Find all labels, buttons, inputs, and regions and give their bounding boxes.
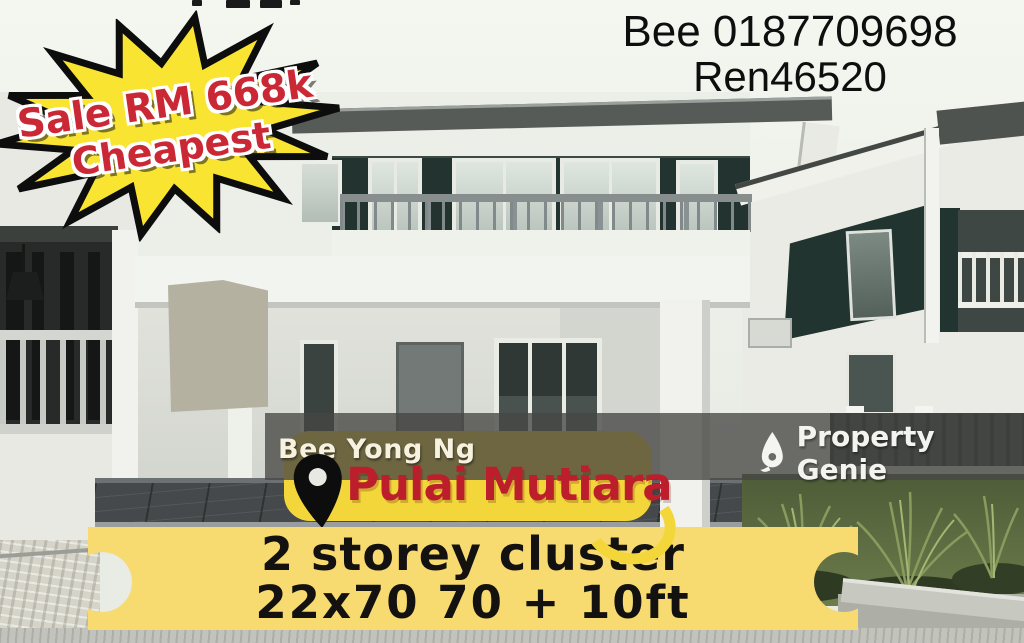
details-banner: 2 storey cluster 22x70 70 + 10ft [88,529,858,627]
balcony-railing-top [340,194,752,202]
property-size: 22x70 70 + 10ft [88,579,858,627]
right-house-accent-wall [940,208,960,332]
cropped-text-fragment [290,0,300,5]
cement-patch [168,280,268,412]
balcony-fascia [332,230,750,256]
pavement-strip [0,628,1024,643]
cropped-text-fragment [192,0,202,6]
balcony-railing-balusters [340,202,752,232]
right-house-balcony [958,210,1024,332]
rain-downpipe [924,128,939,343]
right-house-window [846,229,897,321]
genie-flame-icon [758,430,787,476]
left-railing-bottom [0,424,118,434]
left-railing-top [0,330,118,340]
agent-phone: Bee 0187709698 [565,8,1015,56]
cropped-text-fragment [260,0,282,8]
brand-name: Property Genie [797,420,1024,486]
location-pin-icon [290,450,349,534]
left-railing-balusters [0,340,118,424]
contact-info: Bee 0187709698 Ren46520 [565,8,1015,98]
agent-ren-number: Ren46520 [565,56,1015,98]
property-type: 2 storey cluster [88,529,858,579]
brand-watermark: Property Genie [758,430,1024,476]
cropped-text-fragment [226,0,250,8]
air-conditioner-unit [748,318,792,348]
price-burst: Sale RM 668k Cheapest [0,0,355,256]
property-listing-ad: Bee 0187709698 Ren46520 Bee Yong Ng Prop… [0,0,1024,643]
